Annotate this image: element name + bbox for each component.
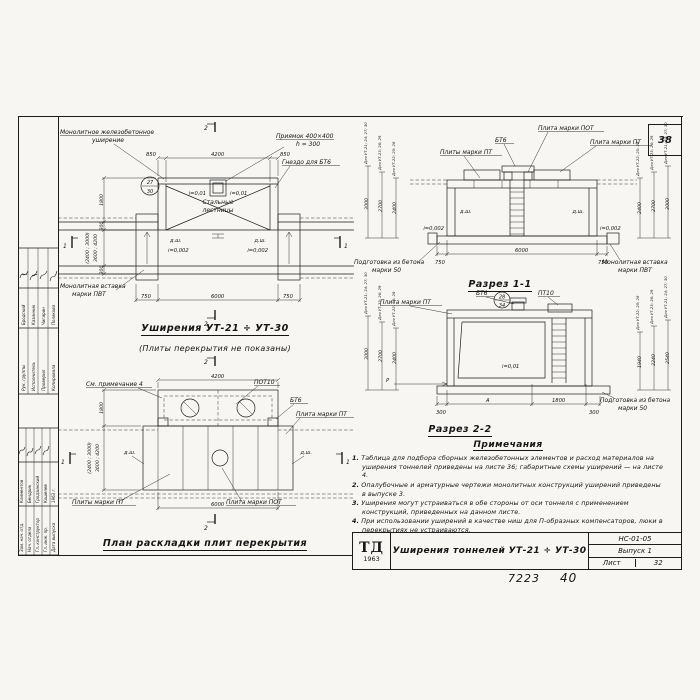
- signer-role: Копировала: [51, 364, 56, 391]
- col-label: Для УТ-23; 26; 29: [649, 135, 654, 171]
- detail-callout: 30: [147, 189, 153, 195]
- left-dim-columns: Для УТ-21; 24; 27; 30 Для УТ-23; 26; 29 …: [363, 122, 399, 238]
- col-value: 2400: [392, 352, 398, 364]
- org-logo: ТД 1963: [353, 533, 391, 569]
- col-label: Для УТ-21; 24; 27; 30: [363, 122, 368, 165]
- dim-span: 3600 ; 4200: [95, 444, 101, 472]
- structure: 28 34 i=0,01 Р: [386, 292, 610, 394]
- label-plity-pt: Плиты марки ПТ: [440, 149, 493, 156]
- signer-name: Климентов: [19, 479, 24, 503]
- label-pit: Приямок 400×400: [276, 133, 334, 140]
- signer-role: Зам. нач. отд.: [19, 523, 24, 552]
- label-plita-pt: Плита марки ПТ: [590, 139, 642, 146]
- dim-1800: 1800: [552, 398, 566, 404]
- label-slope: i=0,002: [600, 226, 621, 232]
- signer-name: Бродский: [21, 304, 26, 325]
- label-bt6: БТ6: [290, 397, 302, 404]
- detail-callout: 27: [147, 180, 154, 186]
- label-joint: д.ш.: [459, 209, 472, 215]
- dim-1800: 1800: [99, 402, 105, 414]
- label-plita-pot: Плита марки ПОТ: [226, 499, 283, 506]
- detail-callout: 28: [499, 295, 505, 301]
- label-bt6: БТ6: [476, 290, 488, 297]
- slab-layout-title: План раскладки плит перекрытия: [103, 538, 307, 551]
- section-2-2-drawing: Для УТ-21; 24; 27; 30 Для УТ-23; 26; 29 …: [352, 288, 682, 434]
- sidebar-stamp: Бродский Казинник Чигирин Полякова Рук. …: [18, 116, 58, 555]
- col-label: Для УТ-22; 25; 28: [635, 295, 640, 331]
- sheet-label: Лист: [589, 559, 636, 567]
- label-insert: марки ПВТ: [72, 291, 107, 298]
- label-slope: i=0,01: [502, 364, 519, 370]
- dim-6000: 6000: [211, 502, 225, 508]
- plan-widening-title-wrap: Уширения УТ-21 ÷ УТ-30 (Плиты перекрытия…: [100, 316, 330, 355]
- plan-widening-title: Уширения УТ-21 ÷ УТ-30: [141, 323, 288, 336]
- note-3: 3. Уширения могут устраиваться в обе сто…: [352, 499, 664, 516]
- label-slope: i=0,002: [247, 248, 268, 254]
- org-logo-year: 1963: [363, 555, 380, 563]
- title-block-right: НС-01-05 Выпуск 1 Лист 32: [588, 533, 681, 569]
- monolithic-inserts: [136, 214, 300, 280]
- note-number: 3.: [352, 499, 359, 507]
- signer-role: Гл. конструктор: [35, 518, 40, 552]
- section-labels: БТ6 Плита марки ПОТ Плита марки ПТ Плиты…: [354, 125, 668, 274]
- mark-label: 1: [346, 459, 350, 466]
- mark-label: 2: [204, 125, 208, 132]
- col-value: 2540: [665, 352, 671, 364]
- col-value: 2700: [651, 200, 657, 212]
- col-value: 3000: [665, 198, 671, 210]
- dim-300: 300: [589, 410, 600, 416]
- label-plity-pt: Плиты марки ПТ: [72, 499, 125, 506]
- dim-1800: 1800: [99, 194, 105, 206]
- dim-300: 300: [99, 266, 105, 275]
- label-plita-pt: Плита марки ПТ: [380, 299, 432, 306]
- label-joint: д.ш.: [571, 209, 584, 215]
- col-label: Для УТ-21; 24; 27; 30: [663, 122, 668, 165]
- col-value: 2700: [378, 200, 384, 212]
- section-mark-2-top: 2: [204, 122, 215, 132]
- col-value: 2400: [392, 202, 398, 214]
- signature-table-2: Климентов Бендрик Гродзинский Кошелев 19…: [18, 428, 58, 555]
- col-label: Для УТ-23; 26; 29: [377, 135, 382, 171]
- label-slope: i=0,002: [423, 226, 444, 232]
- col-label: Для УТ-21; 24; 27; 30: [663, 276, 668, 319]
- note-number: 1.: [352, 454, 359, 462]
- col-value: 2240: [651, 354, 657, 366]
- structure: д.ш. д.ш. i=0,002 i=0,002: [410, 166, 637, 244]
- dim-750: 750: [435, 260, 446, 266]
- mark-label: 2: [204, 359, 208, 366]
- label-insert: Монолитная вставка: [60, 283, 126, 290]
- label-monolithic-widening: уширение: [91, 137, 124, 144]
- dim-span: 3600 ; 4200: [93, 234, 99, 262]
- tunnel-slab-field: [58, 426, 354, 498]
- dim-750: 750: [283, 294, 294, 300]
- note-text: Уширения могут устраиваться в обе сторон…: [361, 499, 628, 516]
- col-label: Для УТ-21; 24; 27; 30: [363, 272, 368, 315]
- dim-300: 300: [436, 410, 447, 416]
- label-podgotovka: марки 50: [372, 267, 401, 274]
- label-joint: д.ш.: [253, 238, 266, 244]
- dim-a: А: [485, 398, 490, 404]
- dim-span: (2400 ; 3000): [87, 442, 93, 474]
- signer-name: 1963 г.: [51, 488, 56, 503]
- issue-number: Выпуск 1: [589, 545, 681, 557]
- mark-label: 1: [63, 243, 67, 250]
- label-joint: д.ш.: [299, 450, 312, 456]
- dimensions: 850 4200 850 750 6000 750 1800 300 (2400…: [85, 152, 302, 302]
- slab-layout-drawing: 2 4200 1 1 1800 (2400 ; 3000) 3600 ; 420…: [58, 352, 354, 548]
- dim-850: 850: [280, 152, 291, 158]
- inventory-number: 7223: [508, 572, 540, 585]
- col-value: 3000: [364, 198, 370, 210]
- label-insert: марки ПВТ: [618, 267, 653, 274]
- note-text: Таблица для подбора сборных железобетонн…: [361, 454, 663, 479]
- dim-4200: 4200: [211, 152, 225, 158]
- sheet-row: Лист 32: [589, 558, 681, 569]
- left-dim-columns: Для УТ-21; 24; 27; 30 Для УТ-23; 26; 29 …: [363, 272, 399, 390]
- signer-role: Дата выпуска: [51, 522, 56, 553]
- col-label: Для УТ-23; 26; 29: [649, 289, 654, 325]
- note-1: 1. Таблица для подбора сборных железобет…: [352, 454, 664, 480]
- label-socket-bt6: Гнездо для БТ6: [282, 159, 331, 166]
- title-block: ТД 1963 Уширения тоннелей УТ-21 ÷ УТ-30 …: [352, 532, 682, 570]
- label-joint: д.ш.: [169, 238, 182, 244]
- dim-span: (2400 ; 3000): [85, 232, 91, 264]
- dim-850: 850: [146, 152, 157, 158]
- signer-name: Бендрик: [27, 484, 32, 503]
- dim-750: 750: [141, 294, 152, 300]
- document-code: НС-01-05: [589, 533, 681, 545]
- sheet-number: 32: [636, 559, 682, 567]
- signer-role: Проверил: [41, 369, 46, 391]
- signer-role: Исполнитель: [31, 361, 36, 391]
- signer-name: Чигирин: [41, 307, 46, 325]
- label-joint: д.ш.: [123, 450, 136, 456]
- label-plita-pot: Плита марки ПОТ: [538, 125, 595, 132]
- label-slope: i=0,01: [230, 191, 247, 197]
- note-2: 2. Опалубочные и арматурные чертежи моно…: [352, 481, 664, 498]
- label-slope: i=0,002: [168, 248, 189, 254]
- sheet-frame-bottom: [18, 555, 352, 556]
- slab-layout-title-wrap: План раскладки плит перекрытия: [60, 531, 350, 551]
- col-label: Для УТ-22; 25; 28: [391, 291, 396, 327]
- col-value: 2400: [637, 202, 643, 214]
- widening-slabs: [158, 390, 278, 426]
- col-label: Для УТ-22; 25; 28: [391, 141, 396, 177]
- dim-6000: 6000: [211, 294, 225, 300]
- col-value: 3000: [364, 348, 370, 360]
- label-stairs: лестницы: [202, 207, 234, 214]
- notes-title: Примечания: [473, 440, 542, 451]
- mark-label: 1: [344, 243, 348, 250]
- label-stairs: Стальные: [202, 199, 233, 206]
- drawing-title: Уширения тоннелей УТ-21 ÷ УТ-30: [391, 533, 588, 569]
- label-pot10: ПОТ10: [254, 379, 275, 386]
- note-number: 4.: [352, 517, 359, 525]
- signature-table-1: Бродский Казинник Чигирин Полякова Рук. …: [18, 248, 58, 394]
- label-bt6: БТ6: [495, 137, 507, 144]
- notes-block: Примечания 1. Таблица для подбора сборны…: [352, 432, 664, 536]
- right-dim-columns: Для УТ-22; 25; 28 Для УТ-23; 26; 29 Для …: [635, 276, 671, 390]
- label-pt10: ПТ10: [538, 290, 554, 297]
- detail-callout: 34: [499, 303, 505, 309]
- note-text: Опалубочные и арматурные чертежи монолит…: [361, 481, 661, 498]
- label-podgotovka: Подготовка из бетона: [600, 397, 671, 404]
- section-1-1-drawing: Для УТ-21; 24; 27; 30 Для УТ-23; 26; 29 …: [352, 116, 682, 290]
- left-dims: 1800 (2400 ; 3000) 3600 ; 4200: [87, 388, 156, 492]
- page-footer-number: 40: [560, 571, 577, 585]
- label-insert: Монолитная вставка: [602, 259, 668, 266]
- plan-labels: См. примечание 4 ПОТ10 БТ6 Плита марки П…: [72, 379, 354, 506]
- label-monolithic-widening: Монолитное железобетонное: [60, 129, 154, 136]
- label-see-note: См. примечание 4: [86, 381, 143, 388]
- bottom-dims: 300 А 1800 300: [435, 384, 602, 416]
- mark-label: 1: [61, 459, 65, 466]
- signer-role: Гл. инж. пр.: [43, 527, 48, 552]
- col-value: 1940: [637, 356, 643, 368]
- col-label: Для УТ-22; 25; 28: [635, 141, 640, 177]
- dim-4200: 4200: [211, 374, 225, 380]
- org-logo-letters: ТД: [359, 540, 384, 556]
- label-slope: i=0,01: [189, 191, 206, 197]
- signer-name: Гродзинский: [35, 475, 40, 503]
- dim-300: 300: [99, 222, 105, 231]
- label-plita-pt: Плита марки ПТ: [296, 411, 348, 418]
- section-mark-2-top: 2: [204, 356, 215, 366]
- signer-role: Нач. отдела: [27, 526, 32, 552]
- col-value: 2700: [378, 350, 384, 362]
- signer-role: Рук. группы: [21, 364, 26, 391]
- signer-name: Полякова: [51, 304, 56, 325]
- signer-name: Казинник: [31, 304, 36, 325]
- section-marks: 2 1 1: [63, 236, 348, 328]
- label-load: Р: [386, 378, 390, 384]
- label-podgotovka: марки 50: [618, 405, 647, 412]
- dim-6000: 6000: [515, 248, 529, 254]
- label-podgotovka: Подготовка из бетона: [354, 259, 425, 266]
- signer-name: Кошелев: [43, 484, 48, 503]
- note-number: 2.: [352, 481, 359, 489]
- label-pit: h = 300: [296, 141, 320, 148]
